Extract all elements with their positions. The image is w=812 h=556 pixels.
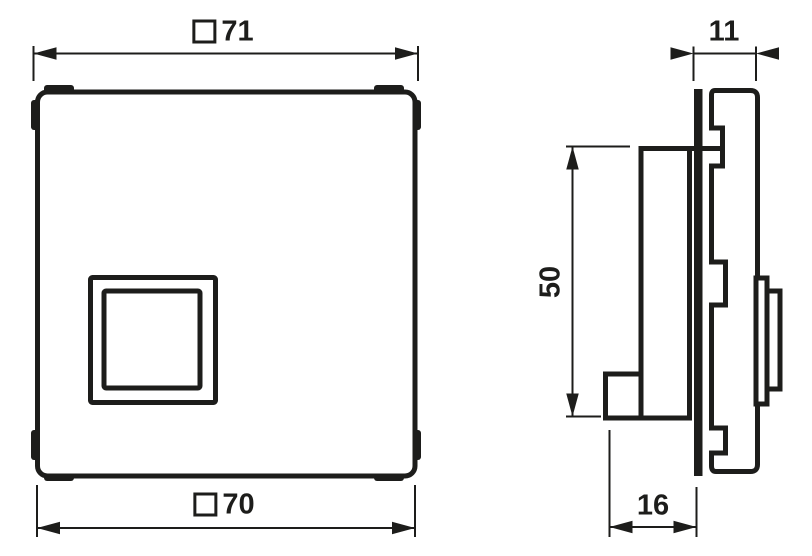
front-view: [31, 46, 421, 537]
dimension-front-width-top: [34, 46, 419, 81]
module-foot: [606, 374, 642, 418]
arrowhead-left-icon: [34, 47, 57, 60]
arrowhead-right-icon: [756, 47, 779, 60]
rear-claw-outer: [767, 291, 780, 389]
dimension-label-front-width-bottom: 70: [193, 491, 254, 520]
side-view: [566, 47, 780, 538]
arrowhead-up-icon: [566, 147, 579, 170]
arrowhead-right-icon: [392, 522, 415, 535]
dimension-label-side-depth-bottom: 16: [637, 492, 669, 521]
dimension-value: 11: [709, 18, 740, 47]
technical-drawing: 71 70 11 50 16: [0, 0, 812, 556]
dimension-side-depth-top: [671, 47, 780, 82]
dimension-value: 16: [637, 492, 669, 521]
dimension-value: 71: [221, 18, 253, 47]
cover-plate-edge: [694, 89, 703, 476]
square-symbol-icon: [193, 492, 217, 516]
dimension-value: 70: [222, 491, 254, 520]
arrowhead-left-icon: [671, 47, 694, 60]
arrowhead-left-icon: [610, 521, 633, 534]
arrowhead-right-icon: [395, 47, 418, 60]
arrowhead-down-icon: [566, 394, 579, 417]
square-symbol-icon: [192, 19, 216, 43]
dimension-value: 50: [537, 266, 566, 298]
dimension-label-front-width-top: 71: [192, 18, 253, 47]
drawing-linework: [0, 0, 812, 556]
dimension-label-side-depth-top: 11: [709, 18, 740, 47]
opening-inner-square: [104, 291, 200, 388]
arrowhead-right-icon: [674, 521, 697, 534]
insert-module: [641, 149, 690, 419]
dimension-label-side-height: 50: [537, 266, 566, 298]
arrowhead-left-icon: [37, 522, 60, 535]
